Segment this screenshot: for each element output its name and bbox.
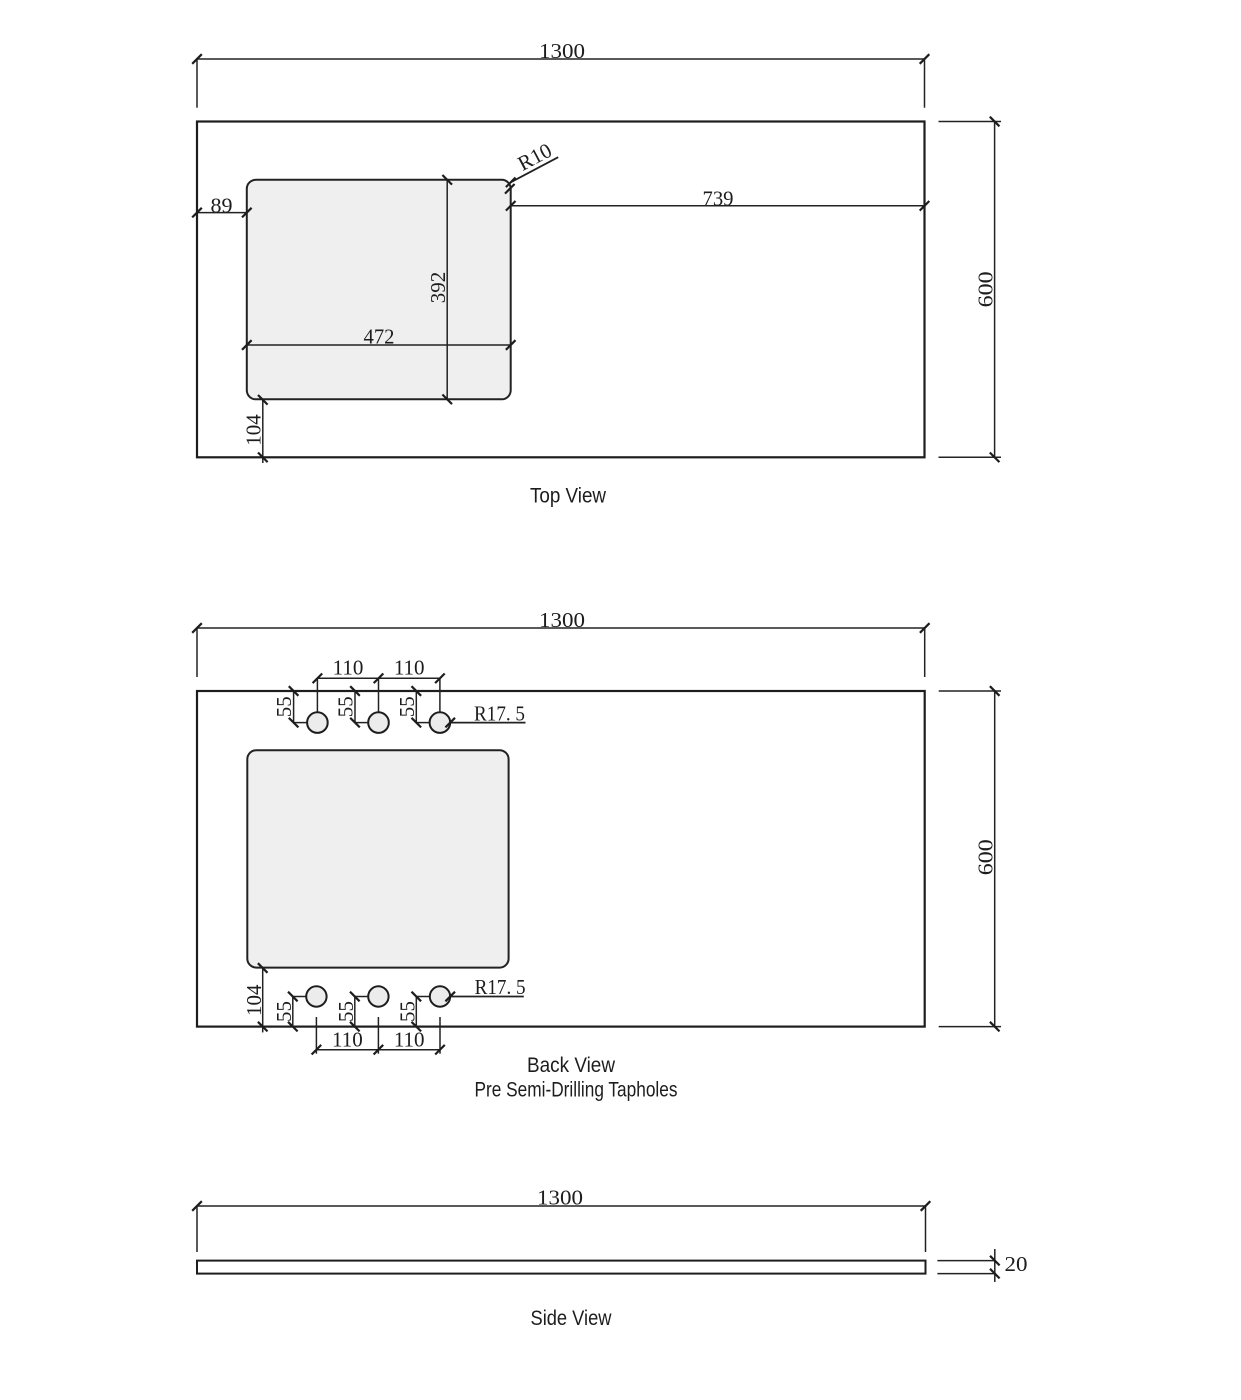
svg-text:Back View: Back View: [527, 1054, 616, 1077]
svg-text:55: 55: [334, 1001, 358, 1022]
svg-text:89: 89: [211, 194, 233, 218]
svg-text:Top View: Top View: [530, 485, 607, 508]
svg-text:472: 472: [364, 325, 395, 349]
svg-text:104: 104: [242, 414, 266, 446]
svg-text:R17. 5: R17. 5: [474, 702, 525, 726]
svg-text:1300: 1300: [539, 39, 585, 63]
svg-text:600: 600: [974, 271, 998, 307]
svg-text:1300: 1300: [539, 608, 585, 632]
svg-text:1300: 1300: [537, 1186, 583, 1210]
svg-text:R17. 5: R17. 5: [475, 975, 526, 999]
svg-text:Side View: Side View: [531, 1307, 613, 1330]
svg-text:392: 392: [426, 272, 450, 304]
svg-text:110: 110: [394, 656, 425, 680]
svg-text:R10: R10: [514, 138, 556, 176]
svg-text:Pre Semi-Drilling Tapholes: Pre Semi-Drilling Tapholes: [475, 1078, 678, 1101]
svg-text:55: 55: [395, 1001, 419, 1022]
svg-text:55: 55: [272, 696, 296, 717]
svg-text:104: 104: [242, 984, 266, 1016]
svg-text:55: 55: [334, 696, 358, 717]
svg-text:55: 55: [272, 1001, 296, 1022]
svg-text:110: 110: [333, 656, 364, 680]
svg-text:600: 600: [974, 839, 998, 875]
svg-text:739: 739: [703, 187, 734, 211]
svg-text:55: 55: [395, 696, 419, 717]
svg-text:20: 20: [1005, 1252, 1028, 1276]
svg-text:110: 110: [394, 1028, 425, 1052]
svg-text:110: 110: [332, 1028, 363, 1052]
